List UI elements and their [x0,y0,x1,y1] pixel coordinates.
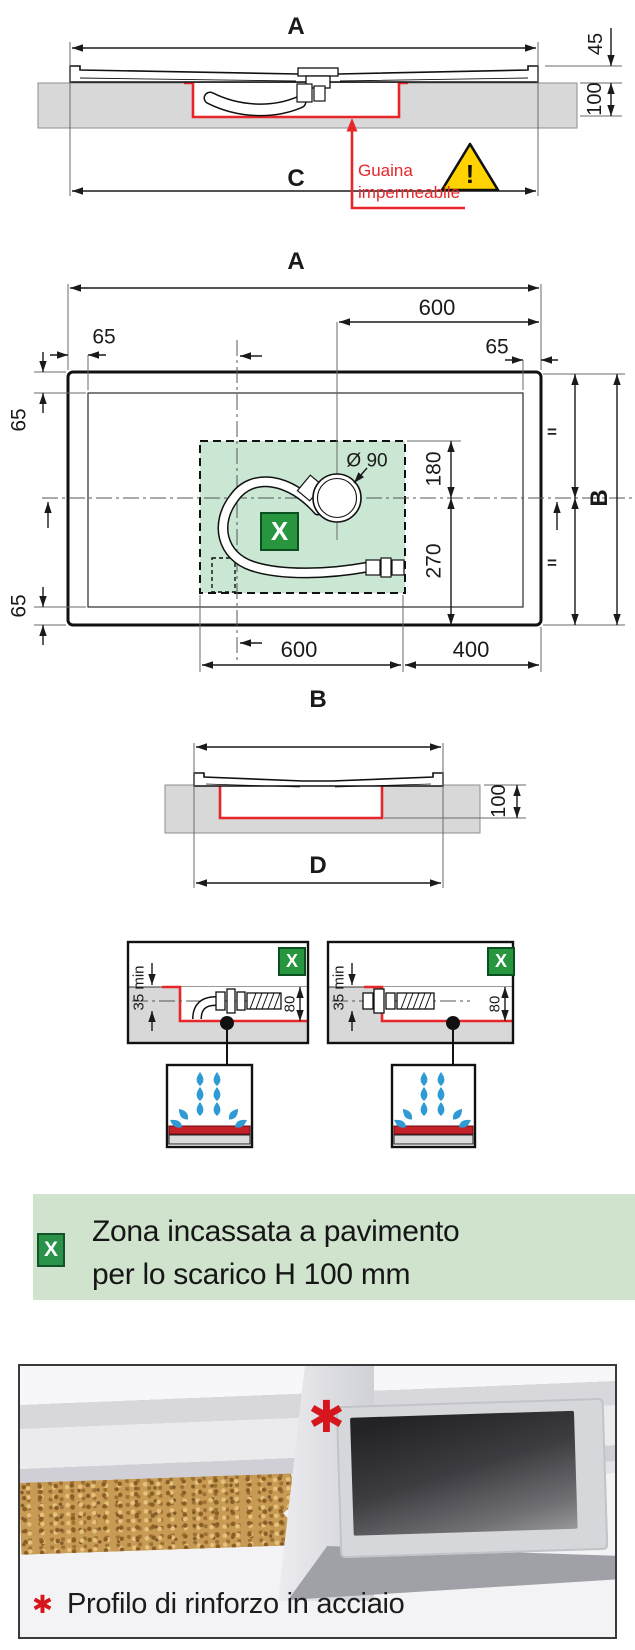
dim-label-d: D [309,854,326,878]
membrane-label-line1: Guaina [358,162,413,179]
dim-65-left-top: 65 [9,408,30,431]
detail-box-straight [328,942,513,1065]
dim-100-top: 100 [585,82,605,115]
dim-label-c: C [287,167,304,191]
drain-detail-drawings [0,935,635,1160]
shower-tray-technical-sheet: A C 45 100 Guaina impermeabile ! [0,0,635,1650]
cross-section-ac-drawing [0,0,635,225]
dim-80-right: 80 [488,996,503,1013]
zone-marker-icon: X [278,947,306,976]
legend-text-line2: per lo scarico H 100 mm [92,1260,410,1290]
dim-600-top: 600 [419,297,456,319]
dim-270: 270 [424,543,445,578]
drain-hole [313,474,361,522]
caption-text: Profilo di rinforzo in acciaio [67,1588,405,1621]
zone-marker-icon: X [487,947,515,976]
membrane-label-line2: impermeabile [358,184,460,201]
dim-45: 45 [586,33,606,55]
shower-spray-box [167,1065,252,1147]
drain-point [446,1016,460,1030]
wood-core-layer [19,1473,301,1555]
dim-65-top-left: 65 [92,327,115,348]
drain-point [220,1016,234,1030]
dim-65-top-right: 65 [485,337,508,358]
shower-spray-box [392,1065,475,1147]
dim-label-b-plan: B [588,489,612,506]
legend-zone-marker-icon: X [37,1233,65,1267]
steel-profile-photo: ✱ ✱ Profilo di rinforzo in acciaio [18,1364,617,1639]
steel-box-profile [336,1398,609,1558]
dim-label-a-plan: A [287,250,304,274]
dim-35min-left: 35 min [132,965,147,1010]
equal-mark-bottom: = [547,555,557,572]
asterisk-marker: ✱ [308,1392,345,1443]
dim-label-b-section: B [309,688,326,712]
dim-35min-right: 35 min [332,965,347,1010]
dim-400: 400 [453,639,490,661]
dim-65-left-bottom: 65 [9,594,30,617]
plan-view-drawing [0,240,635,685]
zone-marker-icon: X [260,512,299,551]
steel-profile-opening [350,1411,578,1536]
legend-text-line1: Zona incassata a pavimento [92,1217,459,1247]
dim-100-section: 100 [489,784,509,817]
dim-180: 180 [424,451,445,486]
dim-80-left: 80 [283,996,298,1013]
dim-label-a-top: A [287,15,304,39]
equal-mark-top: = [547,424,557,441]
drain-cap [298,68,338,76]
caption-asterisk: ✱ [32,1590,53,1620]
dim-600-bottom: 600 [281,639,318,661]
photo-caption: ✱ Profilo di rinforzo in acciaio [32,1588,405,1621]
drain-diameter-label: Ø 90 [346,452,387,471]
tray-profile [194,773,443,786]
warning-exclamation: ! [466,161,475,187]
